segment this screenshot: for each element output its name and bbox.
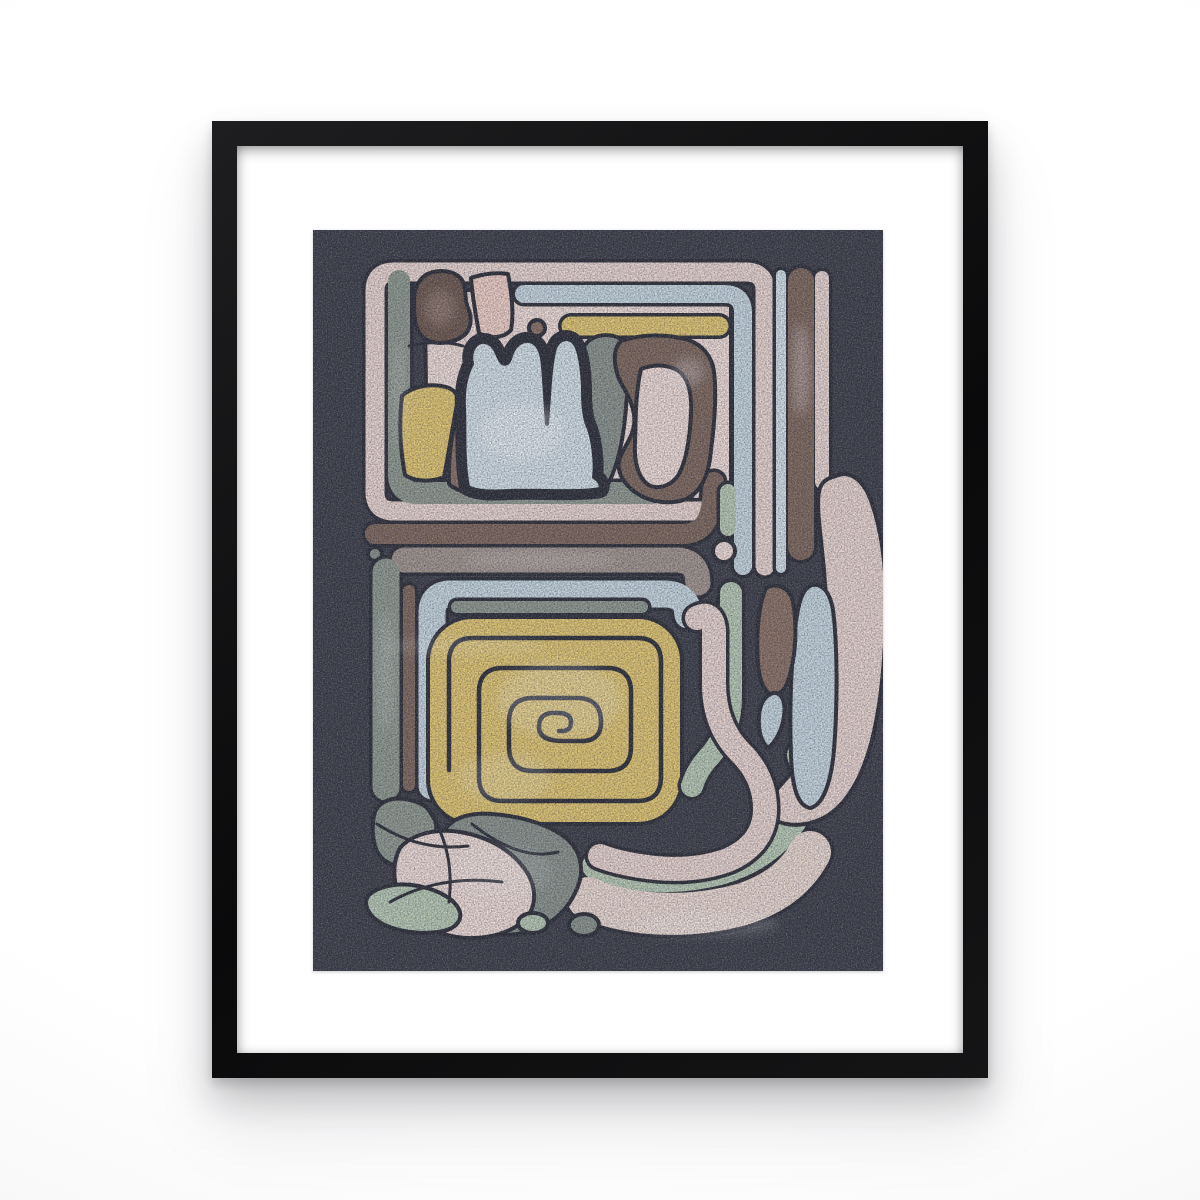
poster-frame [212, 121, 988, 1078]
poster-mat [237, 146, 963, 1053]
artwork-canvas [313, 230, 883, 971]
wall [0, 0, 1200, 1200]
poster-print [313, 230, 883, 971]
grain-overlay-light [313, 230, 883, 971]
